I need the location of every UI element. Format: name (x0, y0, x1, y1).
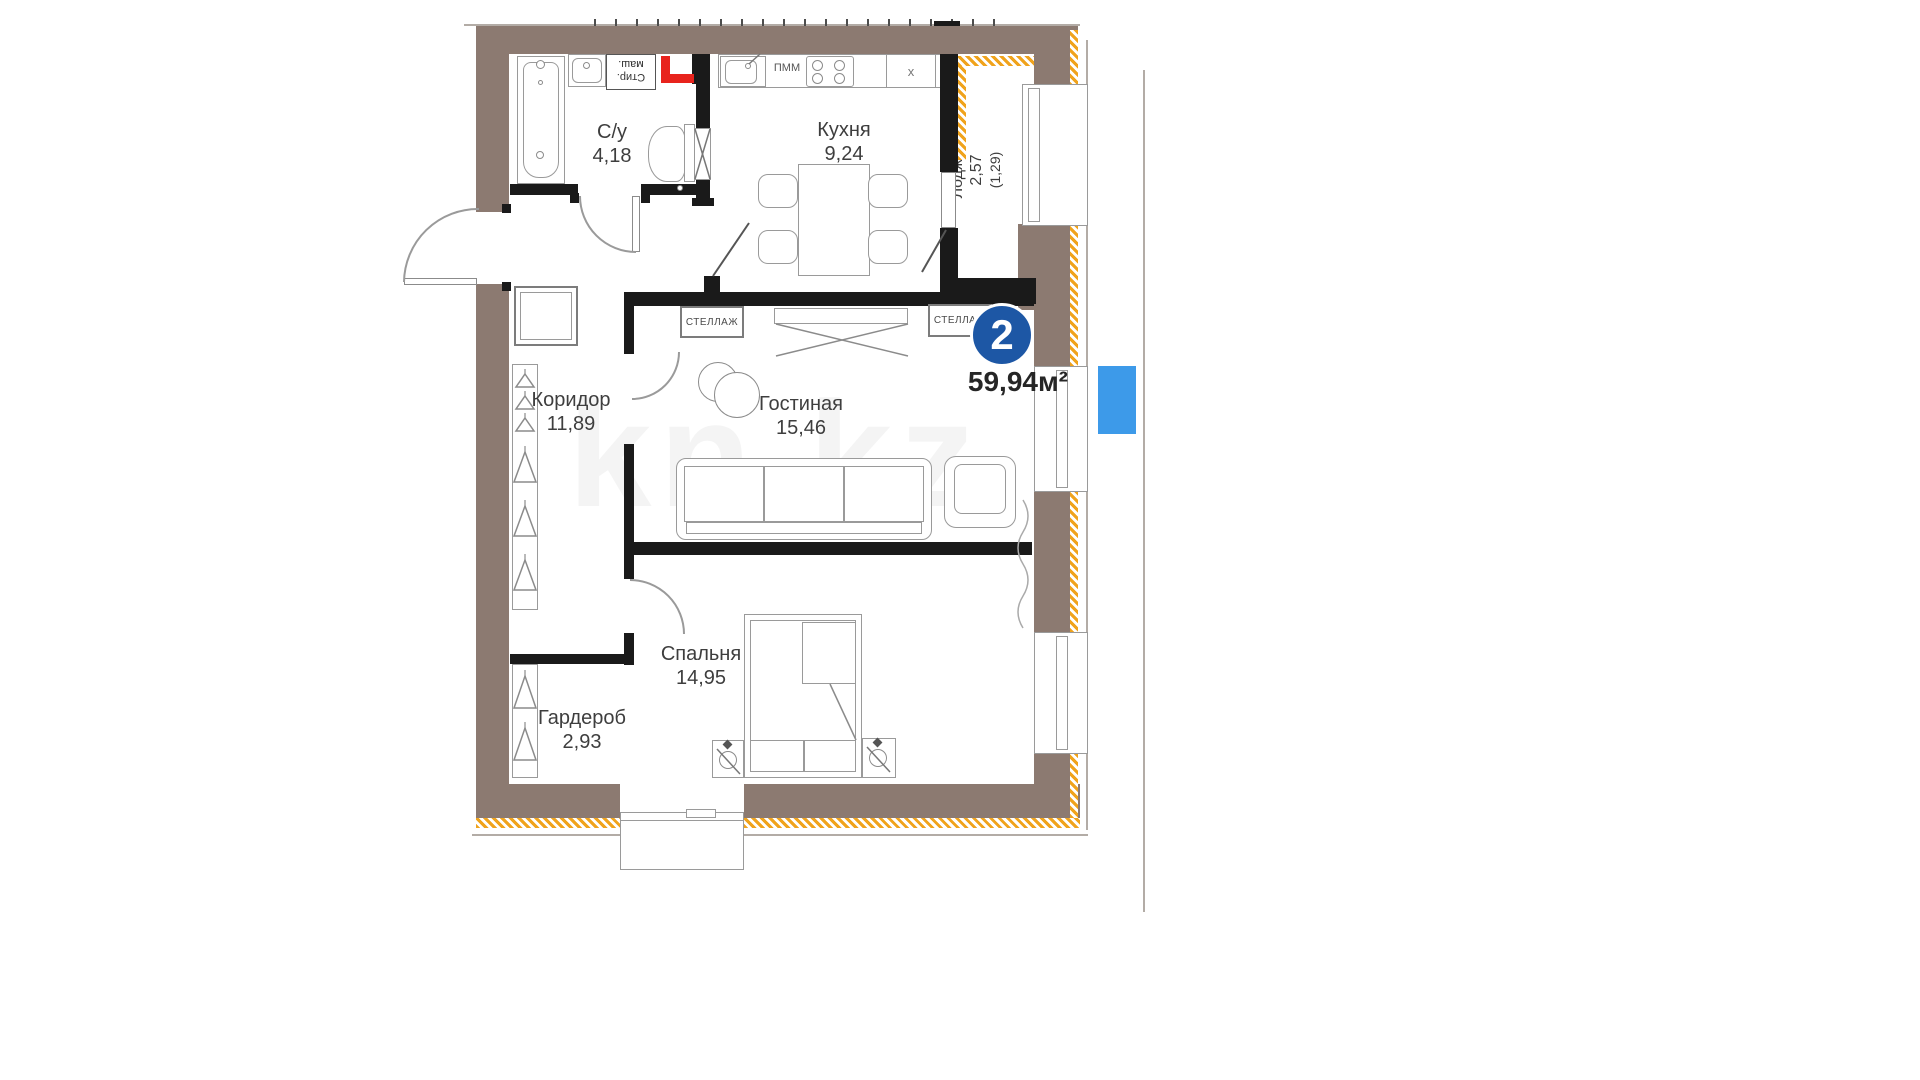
loggia-area: 2,57 (967, 122, 986, 218)
chair-3 (868, 174, 908, 208)
wall-bath-bottom-left (510, 184, 578, 195)
kitchen-sink-bowl (725, 60, 757, 84)
insulation-loggia-left (958, 66, 966, 160)
wall-loggia-bottom (940, 278, 1036, 304)
wall-bottom-left (476, 784, 620, 818)
bathtub-overflow (538, 80, 543, 85)
loggia-window (1028, 88, 1040, 222)
bathtub-drain (536, 151, 544, 159)
chair-1 (758, 174, 798, 208)
sofa-front (686, 522, 922, 534)
wardrobe-area: 2,93 (522, 730, 642, 754)
hall-cabinet-inner (520, 292, 572, 340)
kitchen-area: 9,24 (784, 142, 904, 166)
burner-3 (812, 73, 823, 84)
blue-marker (1098, 366, 1136, 434)
wall-top (476, 26, 1078, 54)
facade-line-bottom (472, 834, 1088, 836)
burner-2 (834, 60, 845, 71)
bathtub-faucet (536, 60, 545, 69)
burner-4 (834, 73, 845, 84)
insulation-right-top (1070, 30, 1078, 86)
wall-stub-red-corner (692, 54, 706, 84)
bathroom-door-leaf (632, 196, 640, 252)
loggia-door-leaf (941, 172, 956, 228)
insulation-right-upper (1070, 224, 1078, 366)
insulation-bottom-left (476, 818, 620, 828)
kitchen-cabinet-x: x (886, 54, 936, 88)
door-jamb-entrance-top (502, 204, 511, 213)
bedroom-window-bottom (620, 812, 744, 821)
shelf-unit-left: СТЕЛЛАЖ (680, 306, 744, 338)
dining-table (798, 164, 870, 276)
wall-bottom-right (744, 784, 1080, 818)
bed-drawer-right (804, 740, 856, 772)
wall-corridor-bedroom-upper (624, 555, 634, 579)
wall-bath-kitchen-cap (692, 198, 714, 206)
cabinet-x-label: x (908, 64, 915, 79)
bedroom-window-right (1056, 636, 1068, 750)
bed-blanket (802, 622, 856, 684)
wardrobe-name: Гардероб (522, 706, 642, 730)
floor-plan: kn.kz (0, 0, 1920, 1080)
wall-left-lower (476, 284, 509, 784)
shelf-left-label: СТЕЛЛАЖ (686, 317, 738, 328)
insulation-loggia-top (958, 56, 1034, 66)
sofa-cushion-2 (764, 466, 844, 522)
tv-x2 (776, 324, 908, 356)
entrance-door-leaf (404, 278, 477, 285)
lamp-left (719, 751, 737, 769)
kitchen-door-leaf-line (713, 223, 749, 276)
corridor-area: 11,89 (512, 412, 630, 436)
kitchen-name: Кухня (784, 118, 904, 142)
wall-wardrobe-separator (510, 654, 632, 664)
label-bedroom: Спальня 14,95 (641, 642, 761, 690)
door-jamb-bath-left (570, 193, 579, 203)
bedroom-area: 14,95 (641, 666, 761, 690)
label-corridor: Коридор 11,89 (512, 388, 630, 436)
bedroom-door-arc (630, 580, 684, 634)
wall-loggia-left-lower (940, 228, 958, 280)
insulation-right-middle (1070, 492, 1078, 632)
wall-living-bedroom (624, 542, 1032, 555)
total-area: 59,94м² (898, 366, 1068, 398)
label-wardrobe: Гардероб 2,93 (522, 706, 642, 754)
wall-left-upper (476, 26, 509, 212)
entrance-door-arc (404, 209, 479, 282)
wall-bath-bottom-right (641, 184, 708, 195)
armchair-seat (954, 464, 1006, 514)
lamp-right (869, 749, 887, 767)
toilet-bowl (648, 126, 686, 182)
burner-1 (812, 60, 823, 71)
vent-shaft (694, 128, 711, 180)
insulation-bottom-right (744, 818, 1080, 828)
tv-stand (774, 308, 908, 324)
bed-drawer-left (750, 740, 804, 772)
wall-corridor-living-upper (624, 306, 634, 354)
living-area: 15,46 (741, 416, 861, 440)
sofa-cushion-1 (684, 466, 764, 522)
wall-corridor-living-lower (624, 444, 634, 544)
toilet-flush (677, 185, 683, 191)
washer-label-line1: Стир. (617, 71, 645, 83)
dishwasher-label: ПММ (768, 62, 806, 74)
rooms-count: 2 (990, 311, 1013, 359)
corridor-name: Коридор (512, 388, 630, 412)
bathroom-name: С/у (572, 120, 652, 144)
living-name: Гостиная (741, 392, 861, 416)
kitchen-sink-drain (745, 63, 751, 69)
insulation-right-bottom (1070, 754, 1078, 818)
loggia-area-reduced: (1,29) (986, 122, 1005, 218)
sofa-cushion-3 (844, 466, 924, 522)
door-jamb-entrance-bottom (502, 282, 511, 291)
facade-line-right-outer (1143, 70, 1145, 912)
bathroom-door-arc (580, 196, 636, 252)
washing-machine: Стир. маш. (606, 54, 656, 90)
rooms-count-badge: 2 (970, 303, 1034, 367)
door-jamb-bath-right (641, 193, 650, 203)
radiator-squiggle (1018, 500, 1028, 628)
chair-4 (868, 230, 908, 264)
wall-loggia-left-upper (940, 54, 958, 172)
bathroom-area: 4,18 (572, 144, 652, 168)
window-sash-mark (686, 809, 716, 818)
bedroom-name: Спальня (641, 642, 761, 666)
label-kitchen: Кухня 9,24 (784, 118, 904, 166)
chair-2 (758, 230, 798, 264)
tv-x1 (776, 324, 908, 356)
washer-label-line2: маш. (618, 58, 644, 70)
label-living: Гостиная 15,46 (741, 392, 861, 440)
red-mark-horizontal (661, 74, 694, 83)
bedroom-window-bay-bottom (620, 814, 744, 870)
label-bathroom: С/у 4,18 (572, 120, 652, 168)
bath-sink-drain (583, 62, 590, 69)
